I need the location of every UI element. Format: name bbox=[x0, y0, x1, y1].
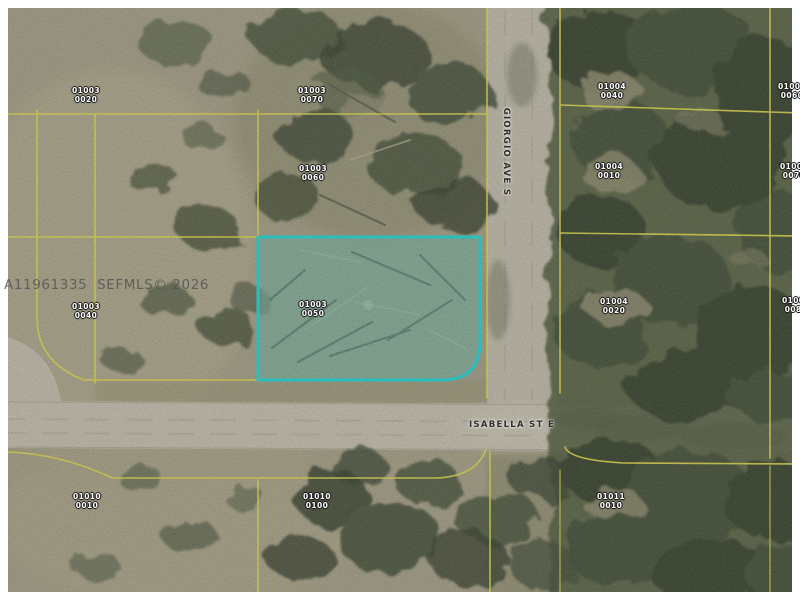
parcel-lot: 0020 bbox=[72, 95, 100, 104]
parcel-block: 01003 bbox=[72, 86, 100, 95]
haze bbox=[8, 8, 792, 592]
parcel-lot: 0050 bbox=[299, 309, 327, 318]
parcel-block: 01003 bbox=[299, 300, 327, 309]
listing-photo-canvas: 01003 0020 01003 0070 01004 0040 01004 0… bbox=[0, 0, 800, 600]
parcel-lot: 0010 bbox=[595, 171, 623, 180]
aerial-photo-svg bbox=[8, 8, 792, 592]
parcel-label: 01011 0010 bbox=[597, 492, 625, 510]
parcel-lot: 0070 bbox=[298, 95, 326, 104]
parcel-block: 01004 bbox=[598, 82, 626, 91]
mls-watermark: A11961335 SEFMLS© 2026 bbox=[4, 277, 209, 293]
parcel-block: 01004 bbox=[778, 82, 800, 91]
parcel-label-truncated: 01004 0060 bbox=[778, 82, 800, 100]
parcel-block: 01004 bbox=[782, 296, 800, 305]
parcel-label: 01010 0010 bbox=[73, 492, 101, 510]
parcel-label: 01003 0070 bbox=[298, 86, 326, 104]
parcel-block: 01010 bbox=[73, 492, 101, 501]
parcel-block: 01003 bbox=[298, 86, 326, 95]
parcel-lot: 0060 bbox=[778, 91, 800, 100]
parcel-label-truncated: 01004 0080 bbox=[782, 296, 800, 314]
aerial-photo bbox=[8, 8, 792, 592]
parcel-block: 01011 bbox=[597, 492, 625, 501]
parcel-block: 01003 bbox=[72, 302, 100, 311]
parcel-lot: 0080 bbox=[782, 305, 800, 314]
parcel-lot: 0060 bbox=[299, 173, 327, 182]
parcel-block: 01004 bbox=[600, 297, 628, 306]
parcel-label: 01004 0040 bbox=[598, 82, 626, 100]
street-label-isabella-st-e: ISABELLA ST E bbox=[469, 420, 555, 430]
parcel-lot: 0070 bbox=[780, 171, 800, 180]
parcel-block: 01003 bbox=[299, 164, 327, 173]
parcel-label: 01004 0010 bbox=[595, 162, 623, 180]
parcel-block: 01010 bbox=[303, 492, 331, 501]
parcel-lot: 0010 bbox=[597, 501, 625, 510]
parcel-block: 01004 bbox=[780, 162, 800, 171]
parcel-lot: 0010 bbox=[73, 501, 101, 510]
parcel-label: 01004 0020 bbox=[600, 297, 628, 315]
parcel-label: 01003 0060 bbox=[299, 164, 327, 182]
parcel-lot: 0020 bbox=[600, 306, 628, 315]
parcel-block: 01004 bbox=[595, 162, 623, 171]
selected-parcel-label: 01003 0050 bbox=[299, 300, 327, 318]
parcel-label: 01003 0040 bbox=[72, 302, 100, 320]
parcel-lot: 0100 bbox=[303, 501, 331, 510]
street-label-giorgio-ave-s: GIORGIO AVE S bbox=[501, 108, 511, 197]
parcel-label-truncated: 01004 0070 bbox=[780, 162, 800, 180]
parcel-label: 01003 0020 bbox=[72, 86, 100, 104]
parcel-lot: 0040 bbox=[72, 311, 100, 320]
parcel-label: 01010 0100 bbox=[303, 492, 331, 510]
parcel-lot: 0040 bbox=[598, 91, 626, 100]
